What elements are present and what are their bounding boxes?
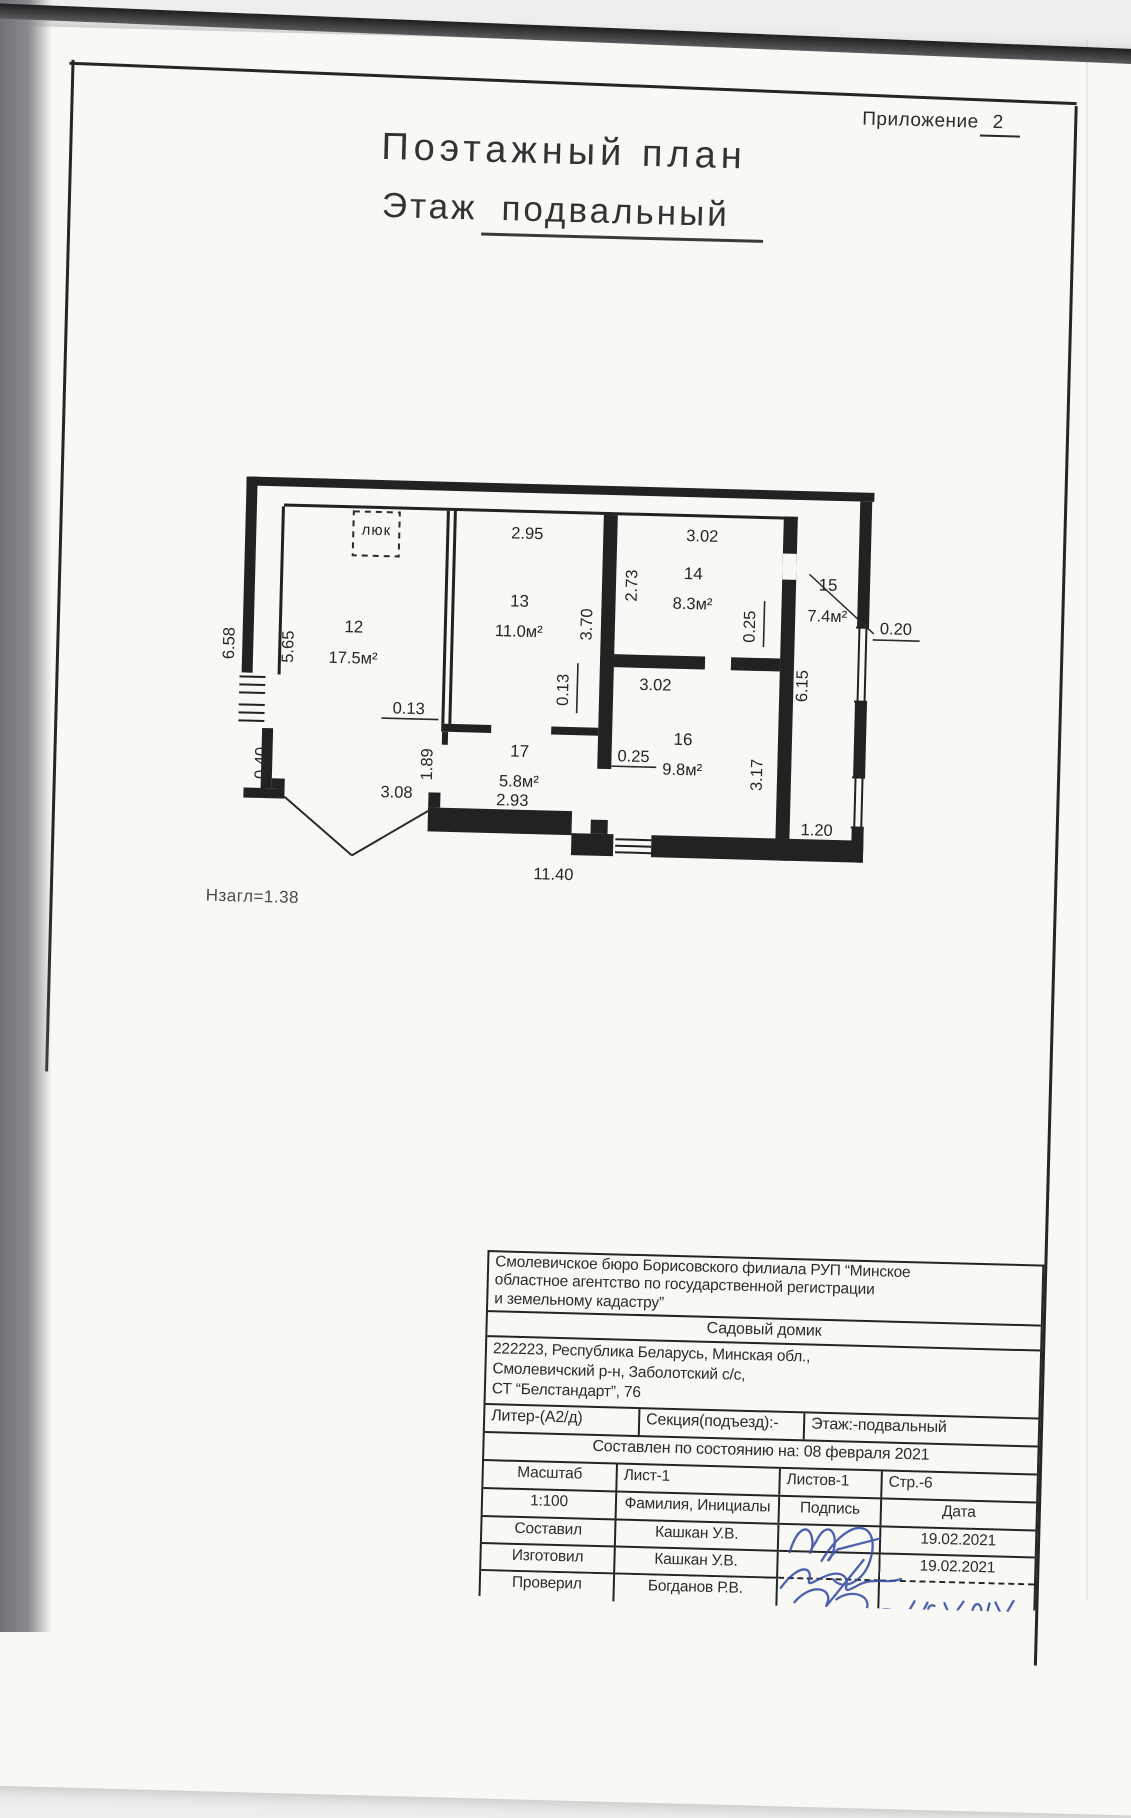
drawing-frame-right (1034, 106, 1078, 1666)
role-proveril: Проверил (480, 1571, 615, 1601)
dim-2-73: 2.73 (623, 569, 642, 602)
room-15-area: 7.4м² (807, 607, 848, 626)
room-16-area: 9.8м² (662, 760, 703, 779)
sheet-cell: Лист-1 (617, 1465, 781, 1495)
date-sostavil: 19.02.2021 (881, 1527, 1036, 1556)
name-izgotovil: Кашкан У.В. (615, 1548, 779, 1579)
signature-header: Подпись (780, 1497, 883, 1526)
room-15-number: 15 (818, 575, 837, 594)
appendix-note: Приложение2 (862, 108, 1020, 137)
dim-3-02-b: 3.02 (639, 676, 672, 695)
dim-1-20: 1.20 (800, 821, 833, 840)
hatch-label: люк (361, 522, 391, 540)
date-proveril (879, 1581, 1034, 1612)
room-13-area: 11.0м² (495, 622, 544, 641)
name-header: Фамилия, Инициалы (617, 1493, 781, 1523)
role-izgotovil: Изготовил (481, 1544, 616, 1574)
room-13-number: 13 (510, 591, 529, 610)
date-izgotovil: 19.02.2021 (880, 1554, 1035, 1585)
floor-value: подвальный (481, 189, 765, 243)
dim-0-40: 0.40 (252, 747, 271, 780)
floor-title: Этажподвальный (381, 186, 764, 243)
scale-label: Масштаб (483, 1461, 618, 1490)
role-sostavil: Составил (482, 1517, 617, 1545)
dim-1-89: 1.89 (418, 748, 437, 781)
room-14-number: 14 (684, 564, 703, 583)
floor-label: Этаж (381, 186, 478, 227)
entrance-lines (283, 797, 429, 858)
floor-plan-drawing: люк 12 17.5м² 13 11.0м² 14 8.3м² 15 7.4м… (201, 461, 942, 910)
scale-value: 1:100 (483, 1489, 618, 1518)
date-header: Дата (881, 1499, 1036, 1529)
liter-cell: Литер-(А2/д) (485, 1405, 641, 1435)
room-12-number: 12 (344, 617, 363, 636)
dim-11-40: 11.40 (533, 865, 574, 884)
dim-0-25-a: 0.25 (617, 747, 650, 766)
dim-0-13-b: 0.13 (554, 674, 573, 707)
page-title: Поэтажный план (381, 126, 747, 179)
dim-0-25-b: 0.25 (741, 610, 760, 643)
dim-3-08: 3.08 (380, 783, 413, 802)
dim-6-58: 6.58 (220, 627, 239, 660)
dim-0-20: 0.20 (880, 620, 913, 639)
floor-plan: люк 12 17.5м² 13 11.0м² 14 8.3м² 15 7.4м… (201, 461, 942, 910)
appendix-label: Приложение (862, 108, 979, 132)
floor-cell: Этаж:-подвальный (805, 1413, 1039, 1445)
signature-proveril-cell (777, 1579, 880, 1609)
basement-height-note: Нзагл=1.38 (205, 886, 299, 908)
room-16-number: 16 (673, 730, 692, 749)
document-page: Приложение2 Поэтажный план Этажподвальны… (0, 0, 1131, 1727)
signature-sostavil-cell (779, 1525, 882, 1553)
scanner-edge-shadow (0, 0, 52, 1632)
title-block: Смолевичское бюро Борисовского филиала Р… (479, 1250, 1045, 1610)
section-cell: Секция(подъезд):- (640, 1409, 806, 1439)
dim-3-17: 3.17 (748, 759, 767, 792)
dim-3-02-a: 3.02 (686, 527, 719, 546)
dim-2-93: 2.93 (496, 791, 529, 810)
name-sostavil: Кашкан У.В. (616, 1521, 780, 1550)
room-14-area: 8.3м² (672, 595, 713, 614)
sheets-cell: Листов-1 (780, 1469, 883, 1498)
dim-0-13-a: 0.13 (392, 699, 425, 718)
appendix-number: 2 (980, 112, 1020, 138)
room-12-area: 17.5м² (328, 649, 378, 668)
drawing-frame-top (69, 62, 1076, 105)
dim-6-15: 6.15 (793, 670, 812, 703)
room-17-area: 5.8м² (499, 772, 540, 791)
name-proveril: Богданов Р.В. (614, 1575, 778, 1606)
dim-2-95: 2.95 (511, 524, 544, 543)
paper-fold-line (1086, 40, 1088, 1600)
walls (237, 476, 874, 862)
room-17-number: 17 (510, 741, 529, 760)
dim-5-65: 5.65 (279, 630, 298, 663)
page-number-cell: Стр.-6 (882, 1471, 1037, 1501)
signature-izgotovil-cell (778, 1552, 881, 1582)
dim-3-70: 3.70 (578, 608, 597, 641)
